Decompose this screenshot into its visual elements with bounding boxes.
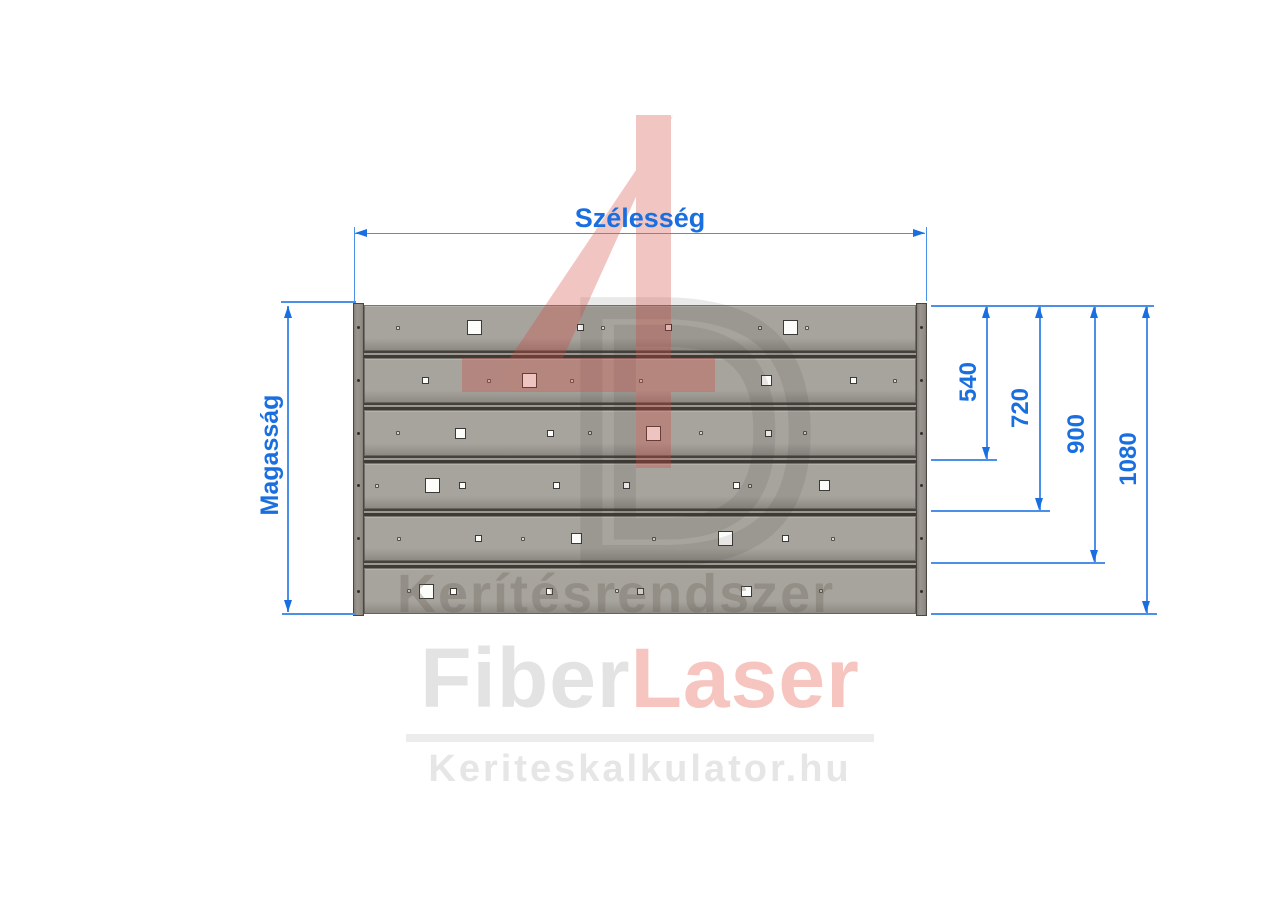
width-arrow-left [355,229,367,237]
stack-dimension-value-label: 720 [1008,348,1034,468]
stack-dimension-line [1039,306,1041,510]
stack-dimension-arrow-top [1090,306,1098,318]
fence-drawing-canvas: D Kerítésrendszer Szélesség Magasság 540 [0,0,1280,905]
stack-dimension-arrow-top [1142,306,1150,318]
width-dimension-label: Szélesség [540,203,740,234]
height-extension-line-top [281,301,356,303]
stack-dimension-line [1094,306,1096,562]
stack-dimension-value-label: 540 [956,322,982,442]
stack-dimension-extension-line [931,459,997,461]
width-arrow-right [913,229,925,237]
height-dimension-line [287,306,289,612]
stack-dimension-line [1146,306,1148,613]
stack-dimension-arrow-top [982,306,990,318]
height-extension-line-bottom [282,613,356,615]
stack-dimension-arrow-bottom [1090,550,1098,562]
stack-dimension-extension-line [931,613,1157,615]
height-arrow-top [284,306,292,318]
stack-dimension-arrow-bottom [1142,601,1150,613]
width-extension-line-right [926,227,928,301]
dimension-layer: Szélesség Magasság 5407209001080 [0,0,1280,905]
stack-dimension-arrow-bottom [982,447,990,459]
stack-dimension-arrow-top [1035,306,1043,318]
stack-dimension-value-label: 1080 [1116,399,1142,519]
width-extension-line-left [354,227,356,301]
stack-dimension-extension-line [931,562,1105,564]
stack-dimension-value-label: 900 [1064,374,1090,494]
height-dimension-label: Magasság [255,365,285,545]
height-arrow-bottom [284,600,292,612]
stack-dimension-line [986,306,988,459]
stack-dimension-extension-line [931,510,1050,512]
stack-dimension-arrow-bottom [1035,498,1043,510]
